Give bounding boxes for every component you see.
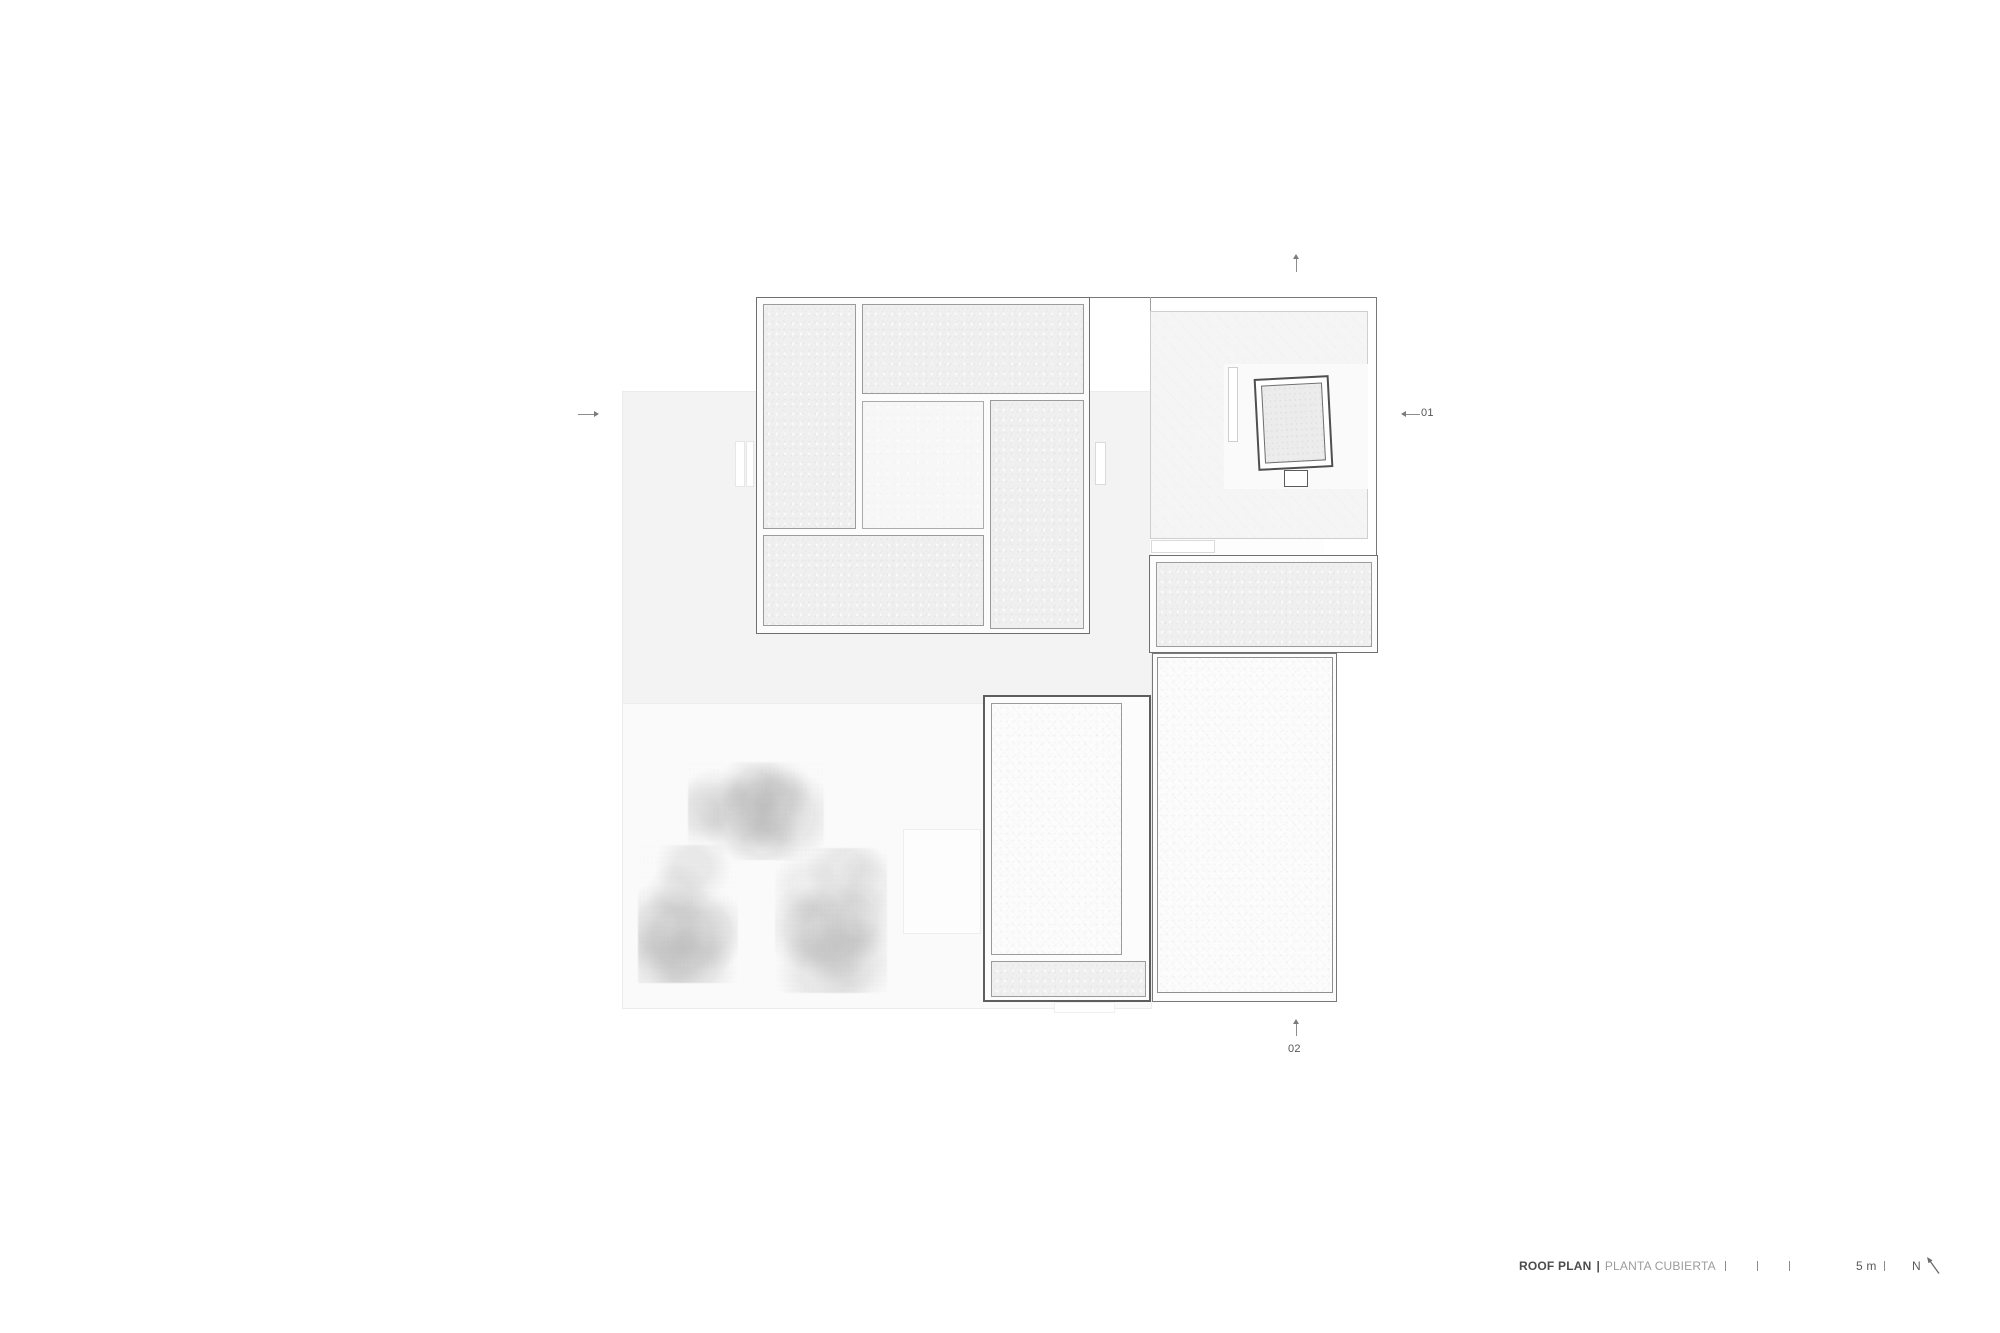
skylight-frame: [1254, 375, 1334, 471]
drawing-title: ROOF PLAN: [1519, 1259, 1591, 1273]
roof-panel-mid-right: [1156, 562, 1372, 647]
skylight-slot: [1228, 367, 1238, 442]
scale-tick-3: [1789, 1261, 1790, 1271]
section-02-label: 02: [1288, 1043, 1301, 1055]
roof-panel-east: [990, 400, 1084, 629]
title-separator: |: [1591, 1259, 1604, 1273]
north-label: N: [1912, 1259, 1921, 1273]
roof-panel-tall-right: [1157, 657, 1333, 993]
roof-panel-west: [763, 304, 856, 529]
scale-tick-2: [1757, 1261, 1758, 1271]
north-arrow-icon: [1925, 1256, 1943, 1276]
roof-block-mid-right: [1149, 555, 1378, 653]
drawing-subtitle: PLANTA CUBIERTA: [1605, 1259, 1716, 1273]
roof-block-tall-right: [1152, 653, 1337, 1002]
scale-tick-end: [1884, 1261, 1885, 1271]
roof-panel-north: [862, 304, 1084, 394]
tree-cluster-left: [638, 845, 738, 983]
rooflight-slot-west-a: [735, 441, 745, 487]
section-02-arrow-bottom: [1296, 1024, 1297, 1036]
scale-label: 5 m: [1856, 1259, 1877, 1273]
roof-panel-bottom-tall: [991, 703, 1122, 955]
chimney-vent: [1284, 470, 1308, 487]
skylight-glass: [1261, 382, 1326, 463]
section-01-arrow-left: [578, 414, 594, 415]
roof-panel-bottom-strip: [991, 961, 1146, 997]
roof-panel-south: [763, 535, 984, 626]
scale-tick-1: [1725, 1261, 1726, 1271]
tree-cluster-right: [775, 848, 887, 993]
rooflight-slot-mid: [1095, 442, 1106, 485]
section-01-arrow-right: [1406, 414, 1420, 415]
threshold-outline: [1054, 1002, 1115, 1013]
title-block: ROOF PLAN|PLANTA CUBIERTA: [1519, 1259, 1716, 1273]
roof-joint-line: [1150, 297, 1151, 312]
roof-gap-rect: [1151, 540, 1215, 553]
roof-plan-sheet: 01 02 ROOF PLAN|PLANTA CUBIERTA 5 m N: [0, 0, 2000, 1333]
section-01-label: 01: [1421, 407, 1434, 419]
rooflight-slot-west-b: [746, 441, 754, 487]
section-02-arrow-top: [1296, 259, 1297, 272]
patio-outline: [903, 829, 981, 934]
roof-block-bottom-center: [983, 695, 1151, 1002]
roof-block-pinwheel: [756, 297, 1090, 634]
roof-panel-center: [862, 401, 984, 529]
